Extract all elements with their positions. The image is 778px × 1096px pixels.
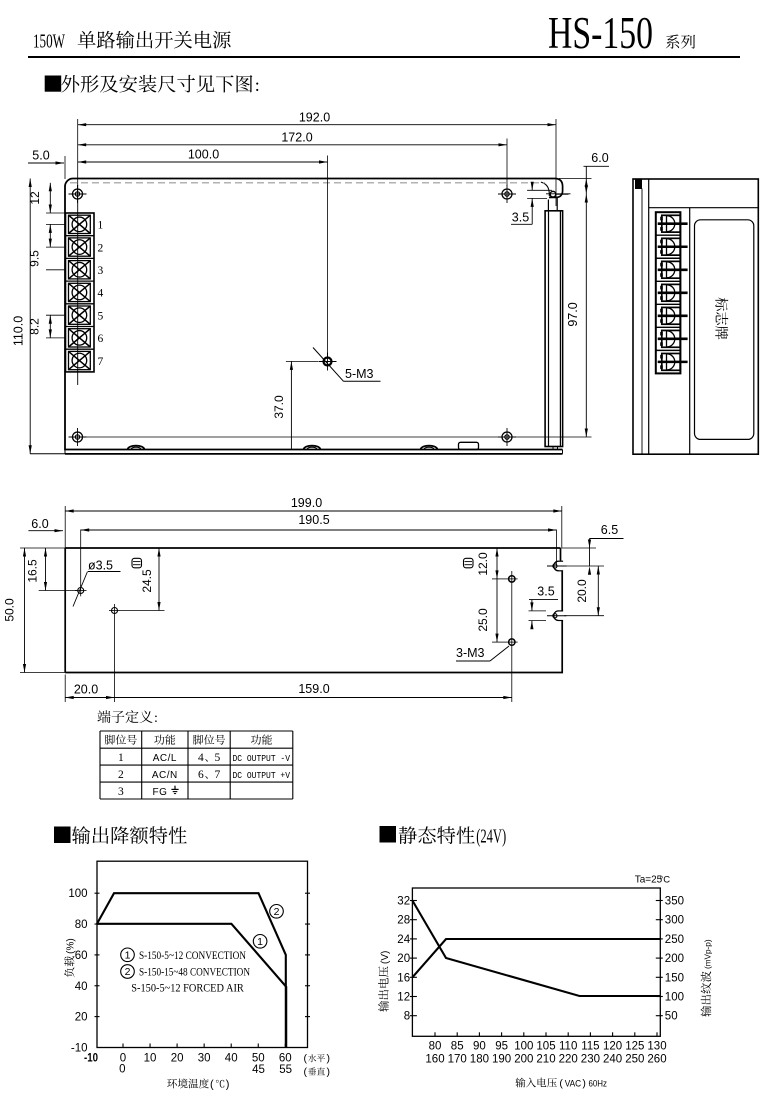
- svg-text:-10: -10: [84, 1053, 98, 1065]
- svg-text:VAC: VAC: [565, 1079, 582, 1090]
- svg-text:(: (: [559, 1078, 563, 1090]
- svg-text:(%): (%): [66, 938, 77, 954]
- svg-text:DC OUTPUT +V: DC OUTPUT +V: [233, 770, 291, 781]
- svg-text:16.5: 16.5: [26, 559, 40, 583]
- svg-text:60: 60: [279, 1053, 292, 1065]
- svg-text:(V): (V): [380, 951, 391, 964]
- svg-text:3.5: 3.5: [537, 585, 554, 599]
- svg-text:250: 250: [625, 1054, 644, 1066]
- svg-text::: :: [154, 711, 158, 726]
- svg-text:20: 20: [171, 1053, 184, 1065]
- svg-text:85: 85: [451, 1041, 464, 1053]
- svg-text:25.0: 25.0: [476, 608, 490, 632]
- svg-text:(: (: [304, 1066, 308, 1078]
- svg-text:100: 100: [68, 888, 87, 900]
- svg-text:260: 260: [647, 1054, 666, 1066]
- svg-text:12: 12: [397, 992, 410, 1004]
- svg-text:150: 150: [665, 972, 684, 984]
- svg-text:ø3.5: ø3.5: [88, 559, 113, 573]
- svg-text:6.0: 6.0: [31, 517, 48, 531]
- svg-text:S-150-5~12 CONVECTION: S-150-5~12 CONVECTION: [139, 948, 246, 962]
- svg-text:120: 120: [603, 1041, 622, 1053]
- svg-text:5-M3: 5-M3: [345, 367, 374, 381]
- svg-text:100: 100: [665, 992, 684, 1004]
- svg-text:250: 250: [665, 934, 684, 946]
- svg-text:160: 160: [425, 1054, 444, 1066]
- svg-text:(mVp-p): (mVp-p): [703, 939, 712, 969]
- svg-text:): ): [226, 1079, 230, 1091]
- svg-text:): ): [327, 1066, 331, 1078]
- svg-text:6: 6: [98, 333, 104, 345]
- svg-text:100.0: 100.0: [188, 148, 219, 162]
- svg-text:2: 2: [98, 242, 104, 254]
- svg-text:10: 10: [144, 1053, 157, 1065]
- svg-text:200: 200: [665, 953, 684, 965]
- svg-text:5: 5: [215, 752, 221, 764]
- svg-text::: :: [255, 75, 260, 95]
- svg-text:100: 100: [514, 1041, 533, 1053]
- svg-text:60: 60: [75, 950, 88, 962]
- svg-text:60Hz: 60Hz: [589, 1079, 608, 1090]
- svg-text:170: 170: [448, 1054, 467, 1066]
- svg-text:30: 30: [198, 1053, 211, 1065]
- svg-text:6.0: 6.0: [591, 151, 608, 165]
- svg-text:2: 2: [125, 966, 131, 978]
- svg-text:2: 2: [274, 906, 280, 918]
- svg-text:20.0: 20.0: [74, 683, 98, 697]
- svg-text:°C: °C: [660, 875, 671, 886]
- svg-text:80: 80: [75, 919, 88, 931]
- svg-text:6: 6: [198, 769, 204, 781]
- svg-text:4: 4: [198, 752, 204, 764]
- svg-text:5: 5: [98, 310, 104, 322]
- svg-text:45: 45: [252, 1064, 265, 1076]
- svg-text:6.5: 6.5: [601, 523, 618, 537]
- svg-text:95: 95: [495, 1041, 508, 1053]
- svg-text:1: 1: [118, 752, 124, 764]
- svg-text:125: 125: [625, 1041, 644, 1053]
- svg-text:190.5: 190.5: [298, 513, 329, 527]
- svg-text:115: 115: [581, 1041, 599, 1053]
- svg-text:DC OUTPUT -V: DC OUTPUT -V: [233, 753, 291, 764]
- svg-text:Ta=25: Ta=25: [635, 875, 663, 886]
- svg-text:20: 20: [75, 1012, 88, 1024]
- svg-text:32: 32: [397, 896, 410, 908]
- svg-text:105: 105: [536, 1041, 555, 1053]
- svg-text:110.0: 110.0: [12, 316, 26, 346]
- svg-text:199.0: 199.0: [291, 496, 322, 510]
- svg-text:350: 350: [665, 896, 684, 908]
- svg-text:2: 2: [118, 769, 124, 781]
- svg-text:1: 1: [257, 936, 263, 948]
- svg-text:97.0: 97.0: [566, 302, 580, 326]
- svg-text:(: (: [304, 1053, 308, 1065]
- svg-text:40: 40: [75, 981, 88, 993]
- svg-text:50.0: 50.0: [3, 598, 17, 622]
- svg-text:50: 50: [252, 1053, 265, 1065]
- svg-text:(24V): (24V): [476, 827, 506, 848]
- svg-text:20: 20: [397, 953, 410, 965]
- svg-text:3: 3: [118, 786, 124, 798]
- svg-text:220: 220: [559, 1054, 578, 1066]
- svg-text:159.0: 159.0: [298, 682, 329, 696]
- svg-text:50: 50: [665, 1011, 678, 1023]
- svg-text:12.0: 12.0: [476, 552, 490, 576]
- svg-text:300: 300: [665, 915, 684, 927]
- svg-text:90: 90: [473, 1041, 486, 1053]
- svg-text:7: 7: [215, 769, 221, 781]
- svg-text:(: (: [210, 1079, 214, 1091]
- svg-text:): ): [582, 1078, 586, 1090]
- svg-text:24: 24: [397, 934, 410, 946]
- svg-text:150W: 150W: [33, 31, 65, 53]
- svg-text:S-150-5~12 FORCED AIR: S-150-5~12 FORCED AIR: [131, 981, 244, 995]
- svg-text:4: 4: [98, 288, 104, 300]
- svg-text:7: 7: [98, 356, 104, 368]
- svg-text:28: 28: [397, 915, 410, 927]
- svg-text:0: 0: [119, 1064, 125, 1076]
- svg-text:230: 230: [581, 1054, 600, 1066]
- svg-text:180: 180: [470, 1054, 489, 1066]
- svg-text:172.0: 172.0: [281, 131, 312, 145]
- svg-text:AC/N: AC/N: [152, 770, 178, 781]
- svg-text:110: 110: [559, 1041, 577, 1053]
- svg-text:24.5: 24.5: [140, 569, 154, 593]
- svg-text:HS-150: HS-150: [548, 8, 653, 58]
- svg-text:130: 130: [647, 1041, 666, 1053]
- svg-text:AC/L: AC/L: [153, 753, 177, 764]
- svg-text:1: 1: [98, 220, 104, 232]
- svg-text:8: 8: [404, 1011, 410, 1023]
- svg-text:1: 1: [125, 950, 131, 962]
- svg-text:): ): [327, 1053, 331, 1065]
- svg-text:FG: FG: [153, 787, 168, 798]
- svg-text:20.0: 20.0: [575, 579, 589, 603]
- svg-text:210: 210: [536, 1054, 555, 1066]
- svg-text:8.2: 8.2: [28, 318, 42, 335]
- svg-text:240: 240: [603, 1054, 622, 1066]
- svg-text:9.5: 9.5: [28, 250, 42, 267]
- svg-text:37.0: 37.0: [272, 395, 286, 419]
- svg-text:3: 3: [98, 265, 104, 277]
- svg-text:5.0: 5.0: [32, 149, 49, 163]
- svg-text:190: 190: [492, 1054, 511, 1066]
- svg-text:200: 200: [514, 1054, 533, 1066]
- svg-text:40: 40: [225, 1053, 238, 1065]
- svg-text:S-150-15~48 CONVECTION: S-150-15~48 CONVECTION: [139, 965, 250, 979]
- svg-text:55: 55: [279, 1064, 292, 1076]
- svg-text:16: 16: [397, 972, 410, 984]
- svg-text:3.5: 3.5: [512, 211, 529, 225]
- svg-text:3-M3: 3-M3: [456, 646, 485, 660]
- svg-text:80: 80: [429, 1041, 442, 1053]
- svg-text:192.0: 192.0: [299, 111, 330, 125]
